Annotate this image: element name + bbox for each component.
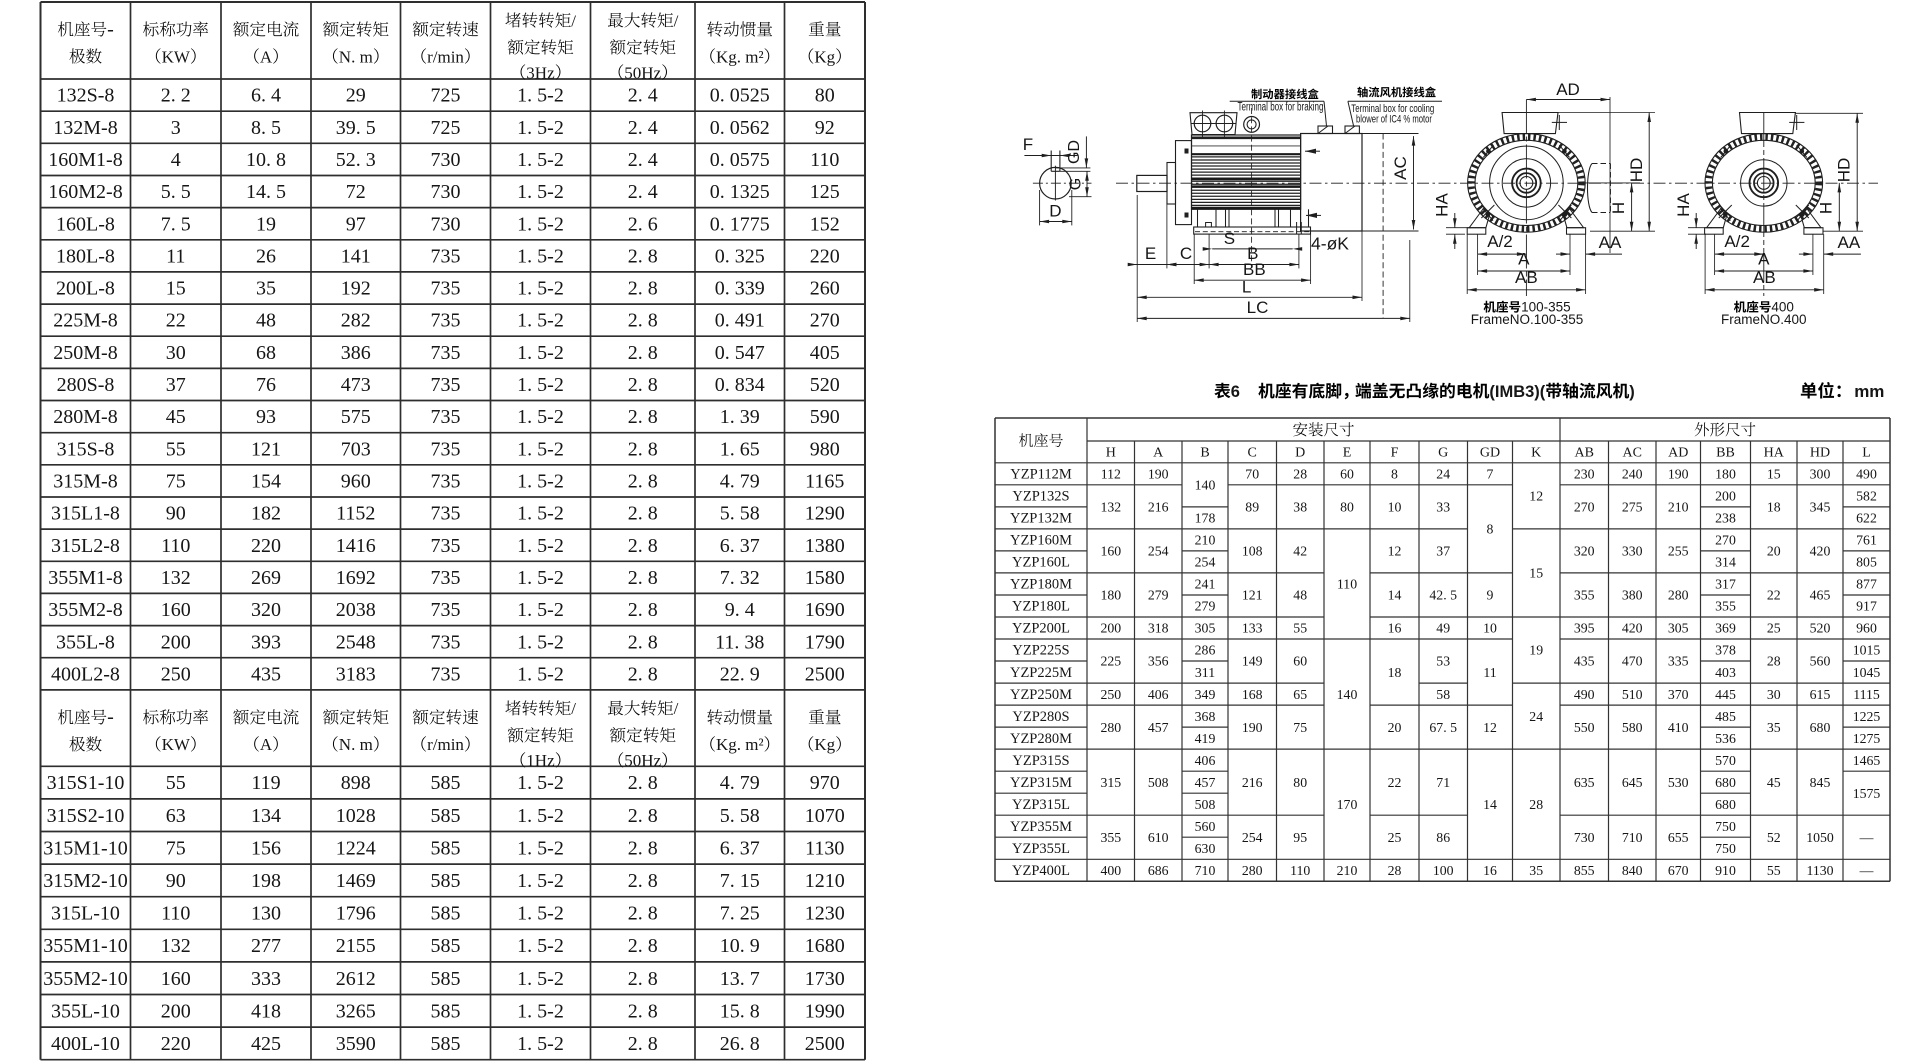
svg-text:YZP280S: YZP280S xyxy=(1012,709,1069,725)
svg-text:180: 180 xyxy=(1100,588,1121,603)
svg-text:37: 37 xyxy=(1436,544,1450,559)
svg-text:840: 840 xyxy=(1622,863,1643,878)
svg-text:241: 241 xyxy=(1195,577,1216,592)
svg-text:225: 225 xyxy=(1100,654,1121,669)
svg-text:355L-8: 355L-8 xyxy=(56,631,115,653)
svg-text:H: H xyxy=(1106,446,1116,461)
svg-text:585: 585 xyxy=(431,1033,461,1055)
svg-text:H: H xyxy=(1817,202,1836,214)
svg-text:—: — xyxy=(1859,863,1874,878)
svg-text:315L1-8: 315L1-8 xyxy=(51,503,120,525)
svg-text:160L-8: 160L-8 xyxy=(56,213,115,235)
svg-text:10: 10 xyxy=(1483,621,1497,636)
svg-text:1. 5-2: 1. 5-2 xyxy=(517,278,564,300)
svg-text:15: 15 xyxy=(1767,467,1781,482)
svg-text:1015: 1015 xyxy=(1853,643,1881,658)
svg-text:blower of IC4 % motor: blower of IC4 % motor xyxy=(1356,113,1432,125)
svg-text:400L-10: 400L-10 xyxy=(51,1033,120,1055)
svg-text:630: 630 xyxy=(1195,841,1216,856)
svg-text:730: 730 xyxy=(431,149,461,171)
svg-text:A/2: A/2 xyxy=(1487,232,1513,251)
svg-text:200: 200 xyxy=(1715,489,1736,504)
svg-text:B: B xyxy=(1200,446,1209,461)
svg-text:3590: 3590 xyxy=(336,1033,376,1055)
svg-text:590: 590 xyxy=(810,406,840,428)
svg-text:254: 254 xyxy=(1195,555,1216,570)
svg-text:BB: BB xyxy=(1716,446,1735,461)
svg-text:38: 38 xyxy=(1293,500,1307,515)
svg-text:N. m: N. m xyxy=(339,47,373,66)
svg-text:HD: HD xyxy=(1810,446,1830,461)
svg-text:HD: HD xyxy=(1627,158,1646,183)
svg-text:735: 735 xyxy=(431,310,461,332)
svg-text:280: 280 xyxy=(1100,720,1121,735)
svg-text:160: 160 xyxy=(161,968,191,990)
svg-text:333: 333 xyxy=(251,968,281,990)
svg-text:1. 5-2: 1. 5-2 xyxy=(517,342,564,364)
svg-text:530: 530 xyxy=(1668,775,1689,790)
svg-text:1028: 1028 xyxy=(336,805,376,827)
svg-text:2. 4: 2. 4 xyxy=(628,117,658,139)
svg-text:22: 22 xyxy=(166,310,186,332)
svg-text:N. m: N. m xyxy=(339,735,373,754)
svg-text:6. 37: 6. 37 xyxy=(720,837,760,859)
svg-text:100: 100 xyxy=(1433,863,1454,878)
svg-text:1. 5-2: 1. 5-2 xyxy=(517,471,564,493)
svg-text:2. 8: 2. 8 xyxy=(628,503,658,525)
svg-text:1. 5-2: 1. 5-2 xyxy=(517,117,564,139)
svg-text:8: 8 xyxy=(1391,467,1398,482)
svg-text:A: A xyxy=(260,47,273,66)
svg-text:39. 5: 39. 5 xyxy=(336,117,376,139)
svg-text:877: 877 xyxy=(1856,577,1877,592)
svg-text:254: 254 xyxy=(1148,544,1169,559)
svg-text:200: 200 xyxy=(161,1000,191,1022)
svg-text:1. 5-2: 1. 5-2 xyxy=(517,903,564,925)
svg-text:22: 22 xyxy=(1388,775,1402,790)
svg-text:250: 250 xyxy=(1100,687,1121,702)
svg-text:200L-8: 200L-8 xyxy=(56,278,115,300)
svg-text:Kg. m²: Kg. m² xyxy=(716,735,764,754)
svg-text:635: 635 xyxy=(1574,775,1595,790)
svg-text:1. 5-2: 1. 5-2 xyxy=(517,772,564,794)
svg-text:330: 330 xyxy=(1622,544,1643,559)
svg-text:10. 8: 10. 8 xyxy=(246,149,286,171)
svg-text:220: 220 xyxy=(810,245,840,267)
svg-text:9. 4: 9. 4 xyxy=(725,599,755,621)
svg-text:19: 19 xyxy=(1529,643,1543,658)
svg-text:A: A xyxy=(1758,249,1770,268)
svg-text:42: 42 xyxy=(1293,544,1307,559)
svg-text:536: 536 xyxy=(1715,731,1736,746)
svg-text:910: 910 xyxy=(1715,863,1736,878)
svg-text:9: 9 xyxy=(1487,588,1494,603)
svg-text:2. 8: 2. 8 xyxy=(628,535,658,557)
svg-text:735: 735 xyxy=(431,406,461,428)
svg-text:35: 35 xyxy=(1529,863,1543,878)
svg-text:S: S xyxy=(1224,229,1235,248)
svg-text:735: 735 xyxy=(431,471,461,493)
svg-text:YZP132M: YZP132M xyxy=(1010,511,1072,527)
svg-text:/: / xyxy=(674,699,679,718)
svg-text:355M2-8: 355M2-8 xyxy=(48,599,122,621)
svg-text:1. 5-2: 1. 5-2 xyxy=(517,374,564,396)
svg-text:3: 3 xyxy=(171,117,181,139)
svg-text:58: 58 xyxy=(1436,687,1450,702)
svg-text:260: 260 xyxy=(810,278,840,300)
svg-text:30: 30 xyxy=(166,342,186,364)
svg-text:670: 670 xyxy=(1668,863,1689,878)
svg-text:1. 5-2: 1. 5-2 xyxy=(517,1000,564,1022)
svg-text:230: 230 xyxy=(1574,467,1595,482)
svg-text:320: 320 xyxy=(1574,544,1595,559)
svg-text:16: 16 xyxy=(1483,863,1497,878)
svg-text:2. 8: 2. 8 xyxy=(628,772,658,794)
svg-text:28: 28 xyxy=(1529,797,1543,812)
svg-text:1. 5-2: 1. 5-2 xyxy=(517,406,564,428)
svg-text:2. 8: 2. 8 xyxy=(628,837,658,859)
svg-text:2. 8: 2. 8 xyxy=(628,310,658,332)
svg-text:D: D xyxy=(1049,202,1061,221)
svg-text:18: 18 xyxy=(1767,500,1781,515)
svg-text:355: 355 xyxy=(1715,599,1736,614)
svg-text:25: 25 xyxy=(1388,830,1402,845)
svg-text:133: 133 xyxy=(1242,621,1263,636)
svg-text:L: L xyxy=(1862,446,1871,461)
svg-text:550: 550 xyxy=(1574,720,1595,735)
svg-text:960: 960 xyxy=(1856,621,1877,636)
svg-text:311: 311 xyxy=(1195,665,1215,680)
svg-text:F: F xyxy=(1023,135,1033,154)
svg-text:735: 735 xyxy=(431,663,461,685)
svg-text:28: 28 xyxy=(1767,654,1781,669)
svg-text:60: 60 xyxy=(1293,654,1307,669)
svg-text:508: 508 xyxy=(1148,775,1169,790)
svg-text:G: G xyxy=(1438,446,1448,461)
svg-text:735: 735 xyxy=(431,342,461,364)
svg-text:1. 39: 1. 39 xyxy=(720,406,760,428)
svg-text:585: 585 xyxy=(431,772,461,794)
svg-text:132: 132 xyxy=(1100,500,1121,515)
svg-text:405: 405 xyxy=(810,342,840,364)
svg-text:1. 5-2: 1. 5-2 xyxy=(517,599,564,621)
svg-text:14: 14 xyxy=(1388,588,1402,603)
svg-text:980: 980 xyxy=(810,438,840,460)
svg-text:1. 65: 1. 65 xyxy=(720,438,760,460)
svg-text:356: 356 xyxy=(1148,654,1169,669)
svg-text:730: 730 xyxy=(431,213,461,235)
svg-text:420: 420 xyxy=(1810,544,1831,559)
svg-text:63: 63 xyxy=(166,805,186,827)
svg-text:1045: 1045 xyxy=(1853,665,1881,680)
svg-text:419: 419 xyxy=(1195,731,1216,746)
svg-text:AB: AB xyxy=(1574,446,1593,461)
svg-text:2. 8: 2. 8 xyxy=(628,935,658,957)
svg-text:160M1-8: 160M1-8 xyxy=(48,149,122,171)
svg-text:132S-8: 132S-8 xyxy=(57,85,115,107)
svg-text:89: 89 xyxy=(1245,500,1259,515)
svg-text:60: 60 xyxy=(1340,467,1354,482)
svg-text:5. 58: 5. 58 xyxy=(720,503,760,525)
svg-text:GD: GD xyxy=(1066,140,1083,164)
svg-text:AB: AB xyxy=(1515,268,1538,287)
svg-text:220: 220 xyxy=(161,1033,191,1055)
svg-text:160M2-8: 160M2-8 xyxy=(48,181,122,203)
svg-text:280: 280 xyxy=(1668,588,1689,603)
svg-text:42. 5: 42. 5 xyxy=(1429,588,1457,603)
svg-text:418: 418 xyxy=(251,1000,281,1022)
svg-text:15. 8: 15. 8 xyxy=(720,1000,760,1022)
svg-text:585: 585 xyxy=(431,935,461,957)
svg-text:457: 457 xyxy=(1148,720,1169,735)
svg-text:119: 119 xyxy=(251,772,280,794)
svg-text:20: 20 xyxy=(1767,544,1781,559)
svg-text:FrameNO.100-355: FrameNO.100-355 xyxy=(1471,312,1584,327)
svg-text:1. 5-2: 1. 5-2 xyxy=(517,85,564,107)
svg-text:275: 275 xyxy=(1622,500,1643,515)
svg-text:45: 45 xyxy=(166,406,186,428)
svg-text:250: 250 xyxy=(161,663,191,685)
svg-text:406: 406 xyxy=(1148,687,1169,702)
svg-text:5. 58: 5. 58 xyxy=(720,805,760,827)
svg-text:Kg: Kg xyxy=(814,735,835,754)
svg-text:YZP160M: YZP160M xyxy=(1010,533,1072,549)
svg-text:1. 5-2: 1. 5-2 xyxy=(517,503,564,525)
svg-text:55: 55 xyxy=(1293,621,1307,636)
svg-text:FrameNO.400: FrameNO.400 xyxy=(1721,312,1807,327)
svg-text:2. 8: 2. 8 xyxy=(628,245,658,267)
svg-text:-: - xyxy=(107,18,114,40)
svg-text:7. 32: 7. 32 xyxy=(720,567,760,589)
svg-text:2. 8: 2. 8 xyxy=(628,599,658,621)
svg-text:255: 255 xyxy=(1668,544,1689,559)
svg-text:735: 735 xyxy=(431,631,461,653)
svg-text:355M1-8: 355M1-8 xyxy=(48,567,122,589)
svg-text:1115: 1115 xyxy=(1853,687,1880,702)
svg-text:r/min: r/min xyxy=(427,47,464,66)
svg-text:1380: 1380 xyxy=(805,535,845,557)
svg-text:406: 406 xyxy=(1195,753,1216,768)
svg-text:YZP225M: YZP225M xyxy=(1010,665,1072,681)
svg-text:585: 585 xyxy=(431,837,461,859)
svg-text:72: 72 xyxy=(346,181,366,203)
svg-text:80: 80 xyxy=(1293,775,1307,790)
svg-text:1680: 1680 xyxy=(805,935,845,957)
svg-text:13. 7: 13. 7 xyxy=(720,968,760,990)
svg-text:C: C xyxy=(1248,446,1257,461)
svg-text:1. 5-2: 1. 5-2 xyxy=(517,181,564,203)
svg-text:HA: HA xyxy=(1674,193,1693,217)
svg-text:Kg. m²: Kg. m² xyxy=(716,47,764,66)
svg-text:490: 490 xyxy=(1856,467,1877,482)
svg-text:1. 5-2: 1. 5-2 xyxy=(517,438,564,460)
svg-text:368: 368 xyxy=(1195,709,1216,724)
svg-text:KW: KW xyxy=(162,47,191,66)
svg-text:48: 48 xyxy=(256,310,276,332)
svg-text:1. 5-2: 1. 5-2 xyxy=(517,837,564,859)
svg-text:240: 240 xyxy=(1622,467,1643,482)
svg-text:845: 845 xyxy=(1810,775,1831,790)
svg-text:190: 190 xyxy=(1242,720,1263,735)
svg-text:1. 5-2: 1. 5-2 xyxy=(517,567,564,589)
svg-text:585: 585 xyxy=(431,870,461,892)
svg-text:121: 121 xyxy=(1242,588,1263,603)
svg-text:315S2-10: 315S2-10 xyxy=(47,805,125,827)
svg-text:1730: 1730 xyxy=(805,968,845,990)
svg-text:400L2-8: 400L2-8 xyxy=(51,663,120,685)
svg-text:2. 8: 2. 8 xyxy=(628,438,658,460)
svg-text:355: 355 xyxy=(1100,830,1121,845)
svg-text:645: 645 xyxy=(1622,775,1643,790)
svg-text:Kg: Kg xyxy=(814,47,835,66)
svg-text:210: 210 xyxy=(1195,533,1216,548)
svg-text:110: 110 xyxy=(1337,577,1357,592)
svg-text:11: 11 xyxy=(166,245,185,267)
svg-text:1225: 1225 xyxy=(1853,709,1881,724)
svg-text:445: 445 xyxy=(1715,687,1736,702)
svg-text:YZP225S: YZP225S xyxy=(1012,643,1069,659)
svg-text:3183: 3183 xyxy=(336,663,376,685)
svg-text:750: 750 xyxy=(1715,841,1736,856)
svg-text:0. 834: 0. 834 xyxy=(715,374,765,396)
svg-text:95: 95 xyxy=(1293,830,1307,845)
svg-text:49: 49 xyxy=(1436,621,1450,636)
svg-text:1070: 1070 xyxy=(805,805,845,827)
svg-text:378: 378 xyxy=(1715,643,1736,658)
svg-text:580: 580 xyxy=(1622,720,1643,735)
svg-text:HA: HA xyxy=(1432,193,1451,217)
svg-text:97: 97 xyxy=(346,213,366,235)
svg-text:26. 8: 26. 8 xyxy=(720,1033,760,1055)
svg-text:510: 510 xyxy=(1622,687,1643,702)
svg-text:270: 270 xyxy=(1715,533,1736,548)
svg-text:410: 410 xyxy=(1668,720,1689,735)
svg-text:29: 29 xyxy=(346,85,366,107)
svg-text:585: 585 xyxy=(431,903,461,925)
svg-text:—: — xyxy=(1859,830,1874,845)
svg-text:A: A xyxy=(1153,446,1164,461)
svg-text:6. 37: 6. 37 xyxy=(720,535,760,557)
svg-text:2. 8: 2. 8 xyxy=(628,631,658,653)
svg-text:52. 3: 52. 3 xyxy=(336,149,376,171)
svg-text:D: D xyxy=(1295,446,1305,461)
svg-text:300: 300 xyxy=(1810,467,1831,482)
svg-text:12: 12 xyxy=(1529,489,1543,504)
svg-text:192: 192 xyxy=(341,278,371,300)
svg-text:132: 132 xyxy=(161,567,191,589)
svg-text:C: C xyxy=(1180,244,1192,263)
svg-text:F: F xyxy=(1391,446,1399,461)
svg-text:1. 5-2: 1. 5-2 xyxy=(517,310,564,332)
svg-text:182: 182 xyxy=(251,503,281,525)
svg-text:250M-8: 250M-8 xyxy=(53,342,117,364)
svg-text:1. 5-2: 1. 5-2 xyxy=(517,870,564,892)
svg-text:1. 5-2: 1. 5-2 xyxy=(517,805,564,827)
svg-text:200: 200 xyxy=(1100,621,1121,636)
svg-text:AA: AA xyxy=(1838,233,1861,252)
svg-text:1. 5-2: 1. 5-2 xyxy=(517,245,564,267)
svg-text:AC: AC xyxy=(1391,156,1410,180)
svg-text:6. 4: 6. 4 xyxy=(251,85,281,107)
svg-text:216: 216 xyxy=(1148,500,1169,515)
svg-text:2. 4: 2. 4 xyxy=(628,85,658,107)
svg-text:735: 735 xyxy=(431,503,461,525)
svg-text:33: 33 xyxy=(1436,500,1450,515)
svg-text:735: 735 xyxy=(431,567,461,589)
svg-text:90: 90 xyxy=(166,503,186,525)
svg-text:90: 90 xyxy=(166,870,186,892)
svg-text:1990: 1990 xyxy=(805,1000,845,1022)
svg-text:305: 305 xyxy=(1668,621,1689,636)
svg-text:560: 560 xyxy=(1810,654,1831,669)
svg-text:168: 168 xyxy=(1242,687,1263,702)
svg-text:210: 210 xyxy=(1337,863,1358,878)
svg-text:75: 75 xyxy=(1293,720,1307,735)
svg-text:4: 4 xyxy=(171,149,181,171)
svg-text:108: 108 xyxy=(1242,544,1263,559)
svg-text:160: 160 xyxy=(161,599,191,621)
svg-text:2. 8: 2. 8 xyxy=(628,663,658,685)
svg-text:22. 9: 22. 9 xyxy=(720,663,760,685)
svg-text:16: 16 xyxy=(1388,621,1402,636)
svg-text:225M-8: 225M-8 xyxy=(53,310,117,332)
svg-text:0. 0525: 0. 0525 xyxy=(710,85,770,107)
svg-text:0. 325: 0. 325 xyxy=(715,245,765,267)
svg-text:YZP200L: YZP200L xyxy=(1012,621,1070,637)
svg-text:8. 5: 8. 5 xyxy=(251,117,281,139)
svg-text:355M2-10: 355M2-10 xyxy=(43,968,127,990)
svg-text:75: 75 xyxy=(166,471,186,493)
svg-text:22: 22 xyxy=(1767,588,1781,603)
svg-text:7. 15: 7. 15 xyxy=(720,870,760,892)
svg-text:93: 93 xyxy=(256,406,276,428)
svg-text:315: 315 xyxy=(1100,775,1121,790)
svg-text:132: 132 xyxy=(161,935,191,957)
svg-text:254: 254 xyxy=(1242,830,1263,845)
svg-text:393: 393 xyxy=(251,631,281,653)
svg-text:110: 110 xyxy=(161,535,190,557)
svg-text:570: 570 xyxy=(1715,753,1736,768)
svg-text:2. 8: 2. 8 xyxy=(628,1033,658,1055)
svg-text:2. 8: 2. 8 xyxy=(628,342,658,364)
svg-text:317: 317 xyxy=(1715,577,1736,592)
svg-text:AB: AB xyxy=(1753,268,1776,287)
svg-text:HA: HA xyxy=(1764,446,1785,461)
svg-text:1Hz: 1Hz xyxy=(526,751,555,770)
svg-text:1580: 1580 xyxy=(805,567,845,589)
svg-text:55: 55 xyxy=(166,438,186,460)
svg-text:YZP400L: YZP400L xyxy=(1012,863,1070,879)
svg-text:420: 420 xyxy=(1622,621,1643,636)
svg-text:52: 52 xyxy=(1767,830,1781,845)
svg-text:1575: 1575 xyxy=(1853,786,1881,801)
svg-text:2. 2: 2. 2 xyxy=(161,85,191,107)
svg-text:370: 370 xyxy=(1668,687,1689,702)
svg-text:560: 560 xyxy=(1195,819,1216,834)
svg-text:2. 8: 2. 8 xyxy=(628,374,658,396)
svg-text:YZP250M: YZP250M xyxy=(1010,687,1072,703)
svg-text:198: 198 xyxy=(251,870,281,892)
svg-text:K: K xyxy=(1531,446,1541,461)
svg-text:710: 710 xyxy=(1622,830,1643,845)
svg-text:395: 395 xyxy=(1574,621,1595,636)
svg-text:121: 121 xyxy=(251,438,281,460)
svg-text:1130: 1130 xyxy=(1806,863,1833,878)
svg-text:70: 70 xyxy=(1245,467,1259,482)
svg-text:80: 80 xyxy=(1340,500,1354,515)
svg-text:Terminal box for braking: Terminal box for braking xyxy=(1238,102,1324,114)
svg-text:1469: 1469 xyxy=(336,870,376,892)
